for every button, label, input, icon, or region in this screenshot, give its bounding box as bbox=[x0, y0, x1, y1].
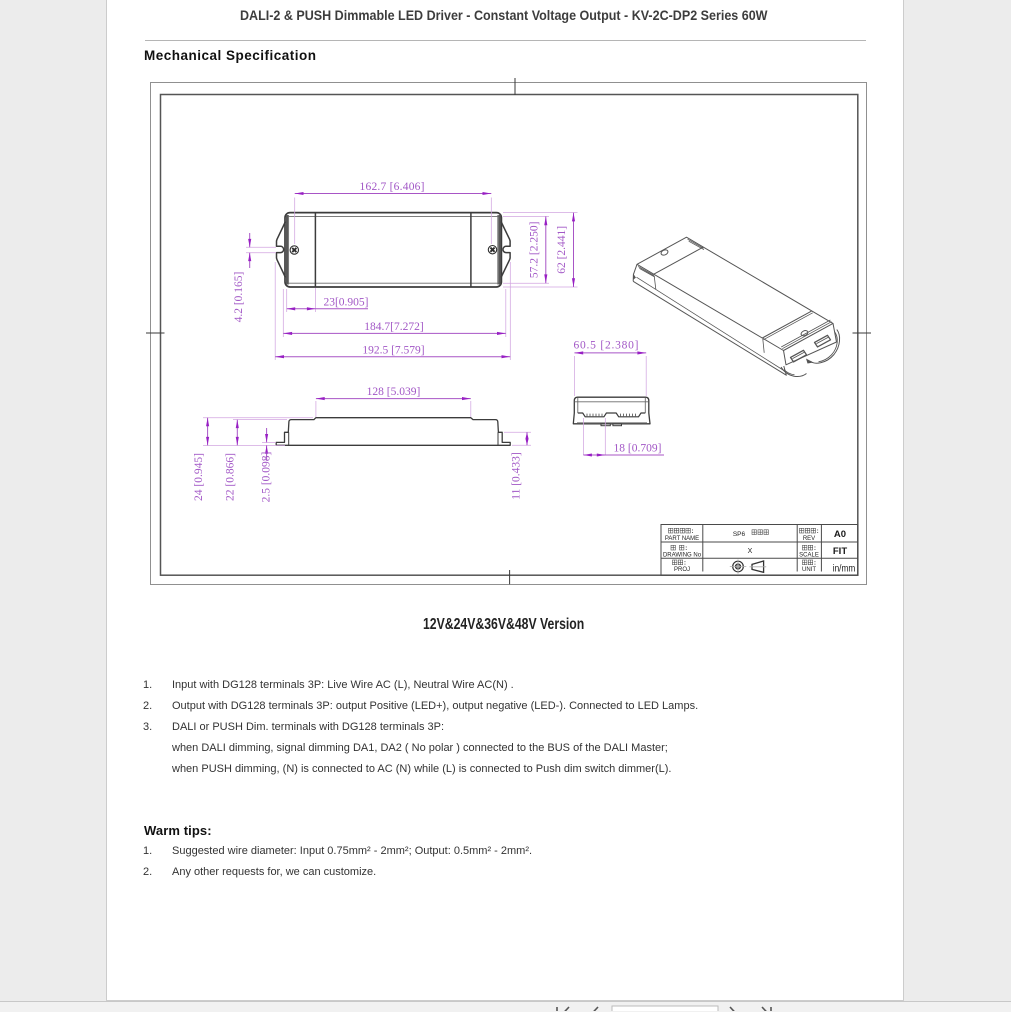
svg-text:REV: REV bbox=[803, 536, 815, 542]
svg-text:57.2 [2.250]: 57.2 [2.250] bbox=[529, 222, 541, 279]
svg-text:60.5 [2.380]: 60.5 [2.380] bbox=[574, 340, 639, 352]
svg-text:SCALE: SCALE bbox=[799, 553, 819, 559]
svg-text:24 [0.945]: 24 [0.945] bbox=[193, 453, 205, 501]
svg-text:FIT: FIT bbox=[833, 546, 847, 557]
svg-text:A0: A0 bbox=[834, 529, 846, 540]
svg-text:62 [2.441]: 62 [2.441] bbox=[556, 226, 568, 274]
svg-text:162.7 [6.406]: 162.7 [6.406] bbox=[360, 181, 425, 193]
svg-text:PROJ: PROJ bbox=[674, 567, 690, 573]
svg-text:192.5 [7.579]: 192.5 [7.579] bbox=[362, 344, 424, 356]
svg-text:128 [5.039]: 128 [5.039] bbox=[367, 386, 421, 398]
svg-text:2.5 [0.098]: 2.5 [0.098] bbox=[261, 452, 273, 503]
svg-text:X: X bbox=[748, 548, 753, 555]
svg-text:PART NAME: PART NAME bbox=[665, 536, 699, 542]
svg-text:in/mm: in/mm bbox=[833, 563, 856, 575]
svg-text:184.7[7.272]: 184.7[7.272] bbox=[364, 321, 423, 333]
svg-text:4.2 [0.165]: 4.2 [0.165] bbox=[233, 272, 245, 323]
svg-text:22 [0.866]: 22 [0.866] bbox=[225, 453, 237, 501]
svg-text:11 [0.433]: 11 [0.433] bbox=[511, 452, 523, 499]
svg-text:23[0.905]: 23[0.905] bbox=[323, 297, 368, 309]
svg-text:SP6: SP6 bbox=[733, 531, 746, 538]
svg-text:DRAWING No: DRAWING No bbox=[663, 553, 702, 559]
svg-text:UNIT: UNIT bbox=[802, 567, 816, 573]
svg-text:18 [0.709]: 18 [0.709] bbox=[614, 443, 662, 455]
